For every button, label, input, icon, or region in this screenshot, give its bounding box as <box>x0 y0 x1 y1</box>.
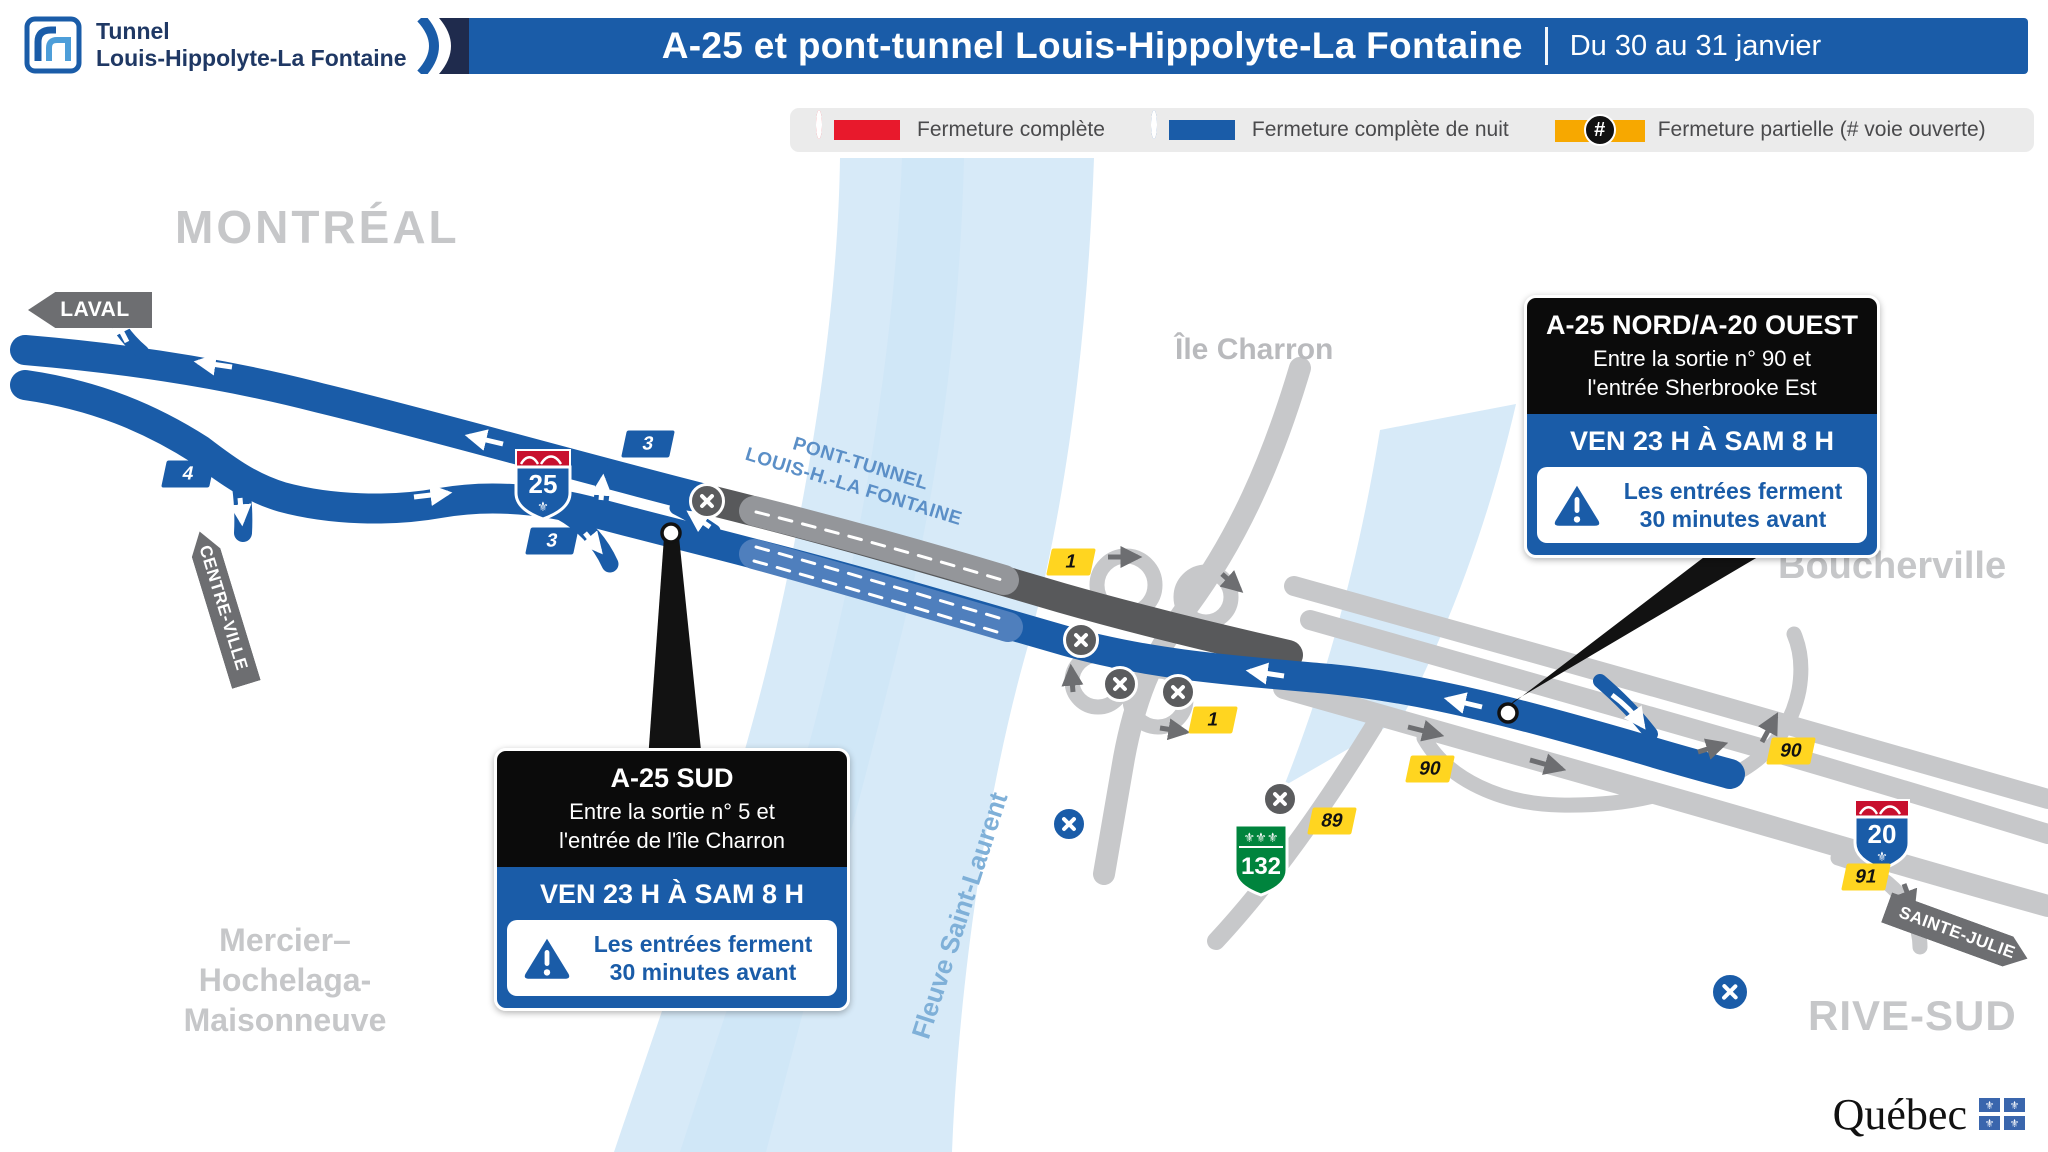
tunnel-logo-icon <box>24 16 82 74</box>
route-shield-a20: 20 ⚜ <box>1852 798 1912 872</box>
exit-badge-1-north: 1 <box>1046 549 1096 576</box>
closed-ramp-marker-tunnel-west <box>689 483 725 519</box>
title-banner: A-25 et pont-tunnel Louis-Hippolyte-La F… <box>455 18 2028 74</box>
exit-badge-3-upper: 3 <box>621 431 675 458</box>
warning-icon <box>1553 483 1601 527</box>
exit-badge-4: 4 <box>161 461 215 488</box>
exit-badge-90-west: 90 <box>1405 756 1455 783</box>
exit-badge-3-lower: 3 <box>525 528 579 555</box>
quebec-flag-icon: ⚜ ⚜ ⚜ ⚜ <box>1979 1098 2026 1131</box>
svg-text:⚜: ⚜ <box>1985 1099 1995 1112</box>
svg-text:⚜⚜⚜: ⚜⚜⚜ <box>1244 831 1279 846</box>
exit-badge-91: 91 <box>1841 864 1891 891</box>
partial-closure-icon: # <box>1555 112 1645 148</box>
route-shield-132: ⚜⚜⚜ 132 <box>1232 822 1290 898</box>
warning-icon <box>523 936 571 980</box>
callout-a25-sud: A-25 SUD Entre la sortie n° 5 et l'entré… <box>494 748 850 1011</box>
svg-text:25: 25 <box>529 469 558 499</box>
legend-item-complete: Fermeture complète <box>816 112 1105 148</box>
svg-text:20: 20 <box>1868 819 1897 849</box>
closed-ramp-marker-interchange-4 <box>1262 781 1298 817</box>
date-range: Du 30 au 31 janvier <box>1570 30 1822 63</box>
callout-schedule: VEN 23 H À SAM 8 H <box>1537 426 1867 457</box>
night-closure-icon <box>1151 112 1239 148</box>
callout-schedule: VEN 23 H À SAM 8 H <box>507 879 837 910</box>
region-label-mercier: Mercier– Hochelaga- Maisonneuve <box>120 920 450 1040</box>
banner-crescent-icon <box>413 18 469 74</box>
region-label-rive-sud: RIVE-SUD <box>1808 992 2017 1040</box>
region-label-ile-charron: Île Charron <box>1175 333 1333 367</box>
night-closure-marker-exit-90 <box>1710 972 1750 1012</box>
full-closure-icon <box>816 112 904 148</box>
closed-ramp-marker-interchange-2 <box>1102 666 1138 702</box>
closed-ramp-marker-interchange-1 <box>1063 622 1099 658</box>
svg-text:⚜: ⚜ <box>537 500 549 515</box>
legend: Fermeture complète Fermeture complète de… <box>790 108 2034 152</box>
exit-badge-89: 89 <box>1307 808 1357 835</box>
callout-title: A-25 SUD <box>505 763 839 794</box>
svg-text:⚜: ⚜ <box>2010 1099 2020 1112</box>
exit-badge-1-south: 1 <box>1188 707 1238 734</box>
night-closure-marker-ile-charron <box>1051 806 1087 842</box>
app-logo: Tunnel Louis-Hippolyte-La Fontaine <box>24 16 407 74</box>
title-divider <box>1545 27 1548 65</box>
svg-text:132: 132 <box>1241 853 1281 880</box>
exit-badge-90-east: 90 <box>1766 738 1816 765</box>
svg-text:⚜: ⚜ <box>1985 1117 1995 1130</box>
legend-item-partial: # Fermeture partielle (# voie ouverte) <box>1555 112 1986 148</box>
legend-item-night: Fermeture complète de nuit <box>1151 112 1509 148</box>
region-label-montreal: MONTRÉAL <box>175 200 460 254</box>
closed-ramp-marker-interchange-3 <box>1160 674 1196 710</box>
svg-text:⚜: ⚜ <box>2010 1117 2020 1130</box>
callout-title: A-25 NORD/A-20 OUEST <box>1535 310 1869 341</box>
quebec-wordmark: Québec ⚜ ⚜ ⚜ ⚜ <box>1833 1089 2026 1140</box>
page-title: A-25 et pont-tunnel Louis-Hippolyte-La F… <box>662 25 1523 67</box>
route-shield-a25: 25 ⚜ <box>513 448 573 522</box>
callout-a25-nord-a20-ouest: A-25 NORD/A-20 OUEST Entre la sortie n° … <box>1524 295 1880 558</box>
